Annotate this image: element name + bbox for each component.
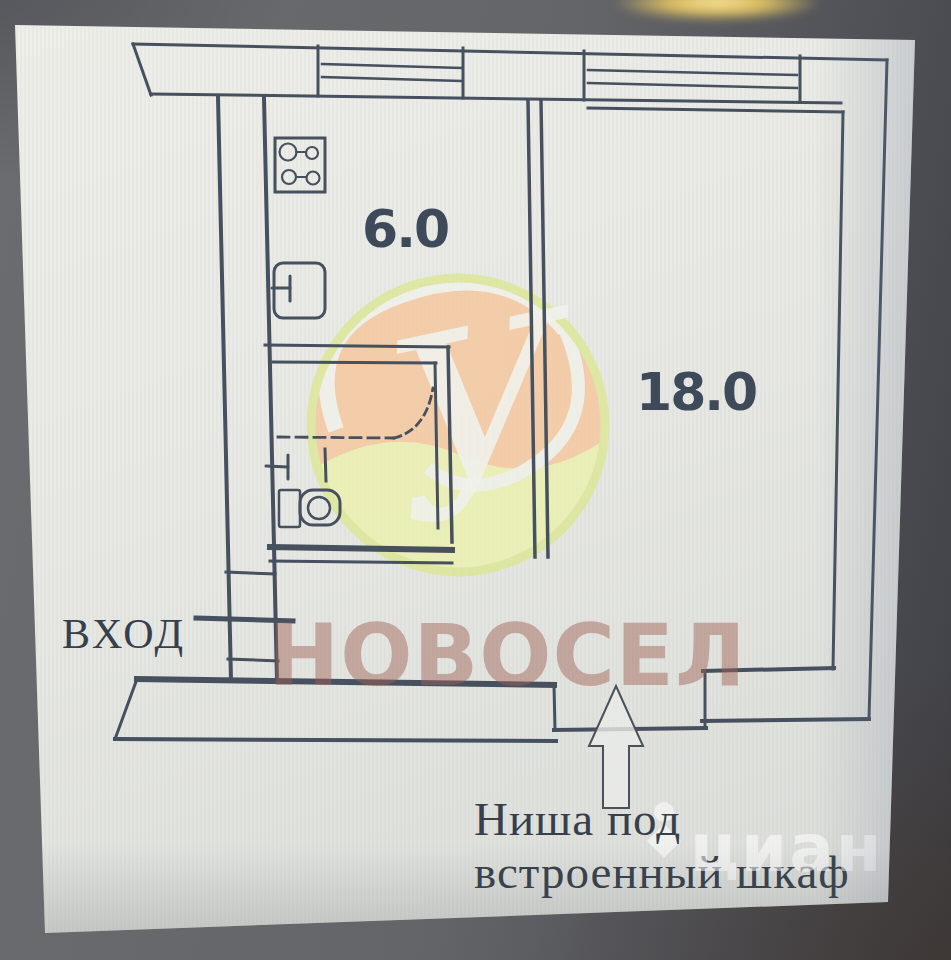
stove-icon — [275, 138, 325, 192]
left-wall — [218, 97, 277, 681]
photo-shadow-right — [815, 25, 915, 915]
kitchen-area-label: 6.0 — [362, 203, 448, 255]
logo-watermark: У — [300, 255, 622, 587]
window-living-room — [588, 70, 797, 88]
light-glare — [612, 0, 822, 22]
photo-shadow-bottom — [0, 845, 951, 940]
kitchen-sink-icon — [272, 263, 325, 318]
entrance-label: ВХОД — [62, 613, 186, 655]
photo-of-floor-plan: У — [0, 0, 951, 960]
bath-sink-icon — [266, 455, 288, 479]
niche-note-line1: Ниша под — [474, 796, 681, 843]
agency-watermark-text: НОВОСЕЛ — [268, 606, 746, 705]
window-kitchen — [322, 64, 461, 81]
living-room-area-label: 18.0 — [636, 366, 756, 418]
top-wall — [133, 44, 887, 112]
floor-plan-paper: У — [0, 0, 951, 960]
